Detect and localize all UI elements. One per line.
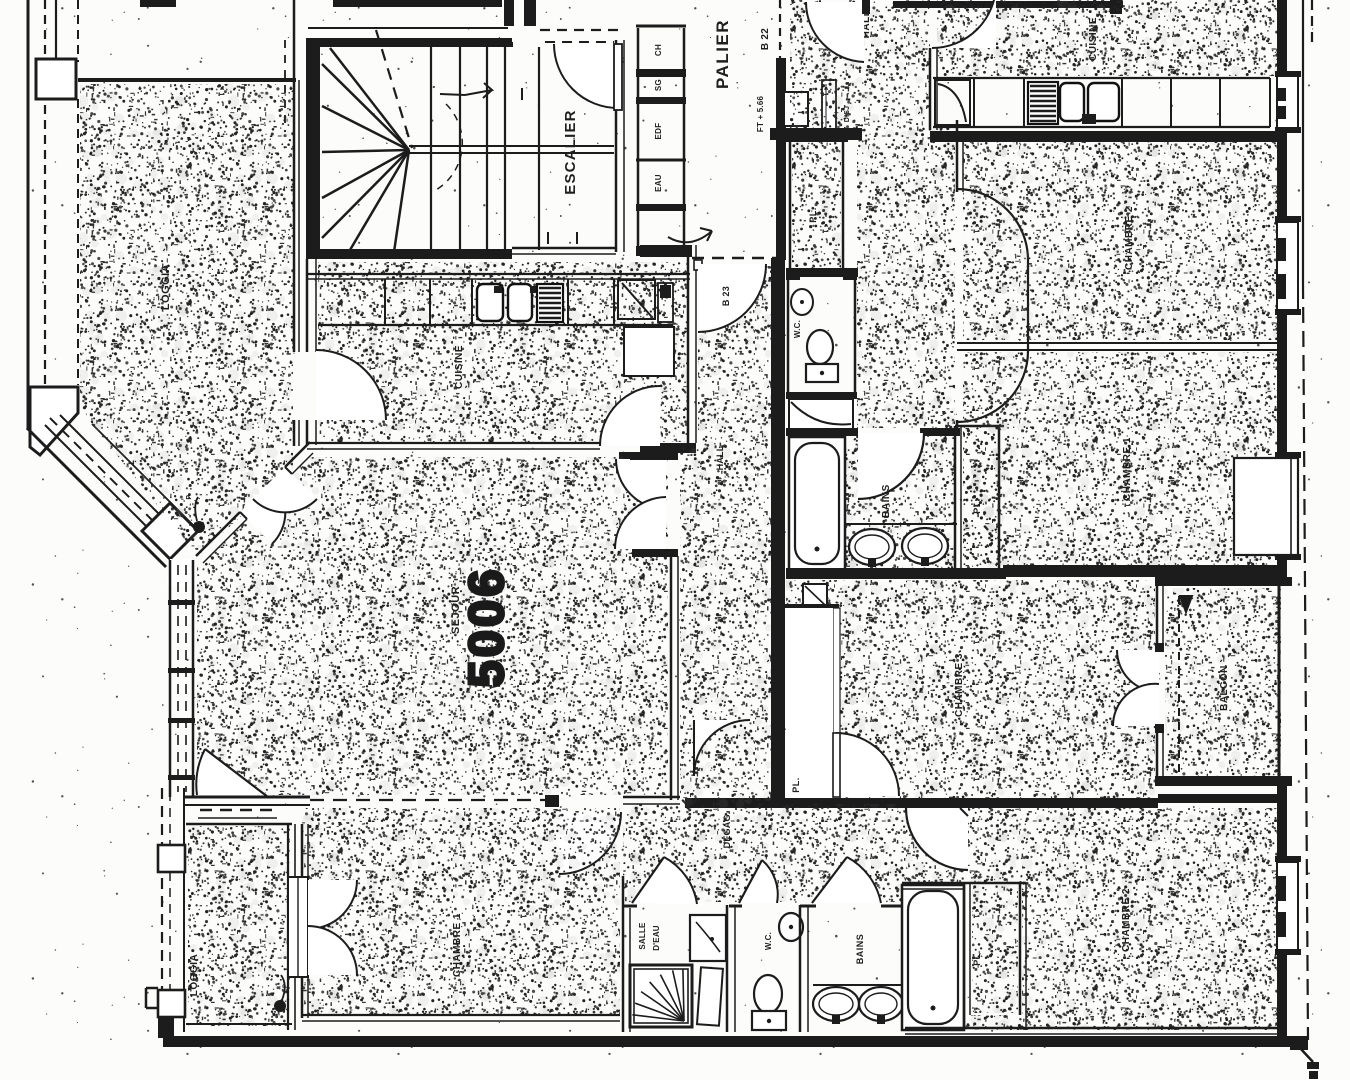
svg-text:DEGAG.: DEGAG. [722, 812, 732, 849]
svg-text:P: P [186, 494, 193, 499]
svg-text:LOGGIA: LOGGIA [160, 264, 172, 310]
svg-text:CUISINE: CUISINE [1088, 17, 1099, 61]
svg-text:EAU: EAU [654, 174, 663, 192]
svg-text:D'EAU: D'EAU [652, 925, 661, 951]
svg-text:CH: CH [654, 44, 663, 56]
svg-text:B 22: B 22 [760, 28, 771, 50]
svg-text:PALIER: PALIER [713, 19, 732, 89]
svg-text:PL.: PL. [972, 950, 982, 966]
svg-text:LOGGIA: LOGGIA [189, 954, 200, 996]
svg-text:CHAMBRE 1: CHAMBRE 1 [1122, 437, 1133, 501]
svg-text:CHAMBRE 2: CHAMBRE 2 [1121, 888, 1132, 952]
svg-text:EDF: EDF [654, 123, 663, 140]
svg-text:CHAMBRE 3: CHAMBRE 3 [954, 653, 965, 717]
svg-text:PL.: PL. [791, 777, 801, 793]
svg-text:BAINS: BAINS [881, 484, 892, 518]
svg-text:W.C.: W.C. [793, 320, 802, 338]
svg-text:ESCALIER: ESCALIER [562, 109, 579, 194]
svg-text:SG: SG [654, 79, 663, 91]
svg-text:CUISINE: CUISINE [454, 345, 465, 389]
svg-text:CHAMBRE 1: CHAMBRE 1 [452, 913, 463, 977]
svg-text:BAINS: BAINS [855, 934, 865, 965]
svg-text:PL.: PL. [808, 207, 818, 223]
svg-text:FT + 5.66: FT + 5.66 [756, 96, 765, 133]
svg-text:HALL: HALL [715, 445, 725, 470]
svg-text:B 23: B 23 [721, 286, 731, 306]
svg-text:BALCON: BALCON [1219, 665, 1230, 711]
svg-text:W.C.: W.C. [764, 932, 773, 950]
svg-text:5006: 5006 [460, 566, 514, 687]
svg-text:CHAMBRE 2: CHAMBRE 2 [1124, 206, 1135, 270]
svg-text:SALLE: SALLE [638, 922, 647, 950]
